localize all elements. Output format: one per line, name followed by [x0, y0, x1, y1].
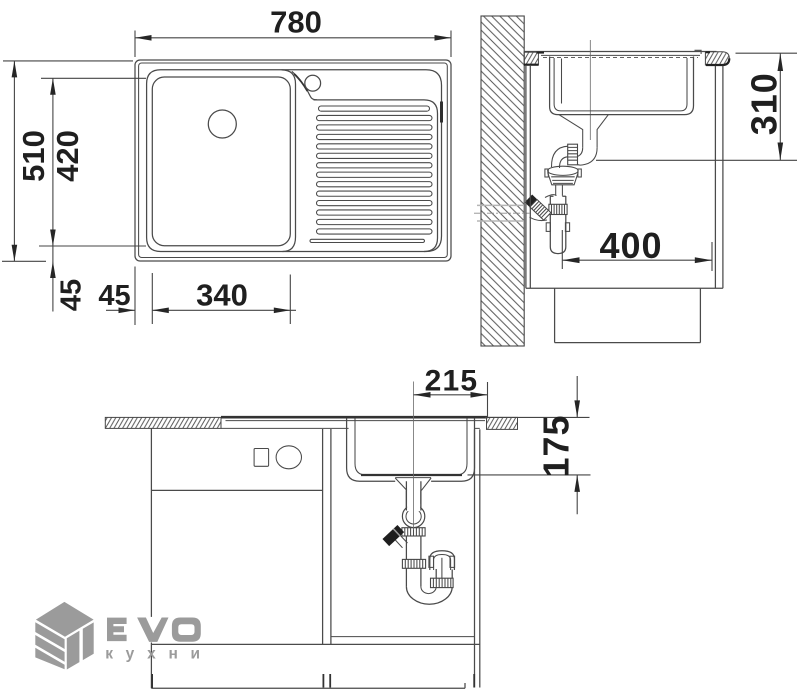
svg-text:175: 175: [535, 414, 576, 477]
svg-text:45: 45: [56, 279, 88, 311]
svg-text:45: 45: [98, 280, 130, 312]
svg-text:215: 215: [425, 365, 479, 398]
svg-text:кухни: кухни: [105, 645, 213, 662]
svg-text:340: 340: [196, 277, 248, 312]
svg-text:310: 310: [744, 72, 785, 135]
svg-text:780: 780: [270, 5, 322, 40]
svg-text:510: 510: [16, 130, 51, 182]
svg-text:400: 400: [599, 225, 662, 266]
svg-text:420: 420: [50, 130, 85, 182]
